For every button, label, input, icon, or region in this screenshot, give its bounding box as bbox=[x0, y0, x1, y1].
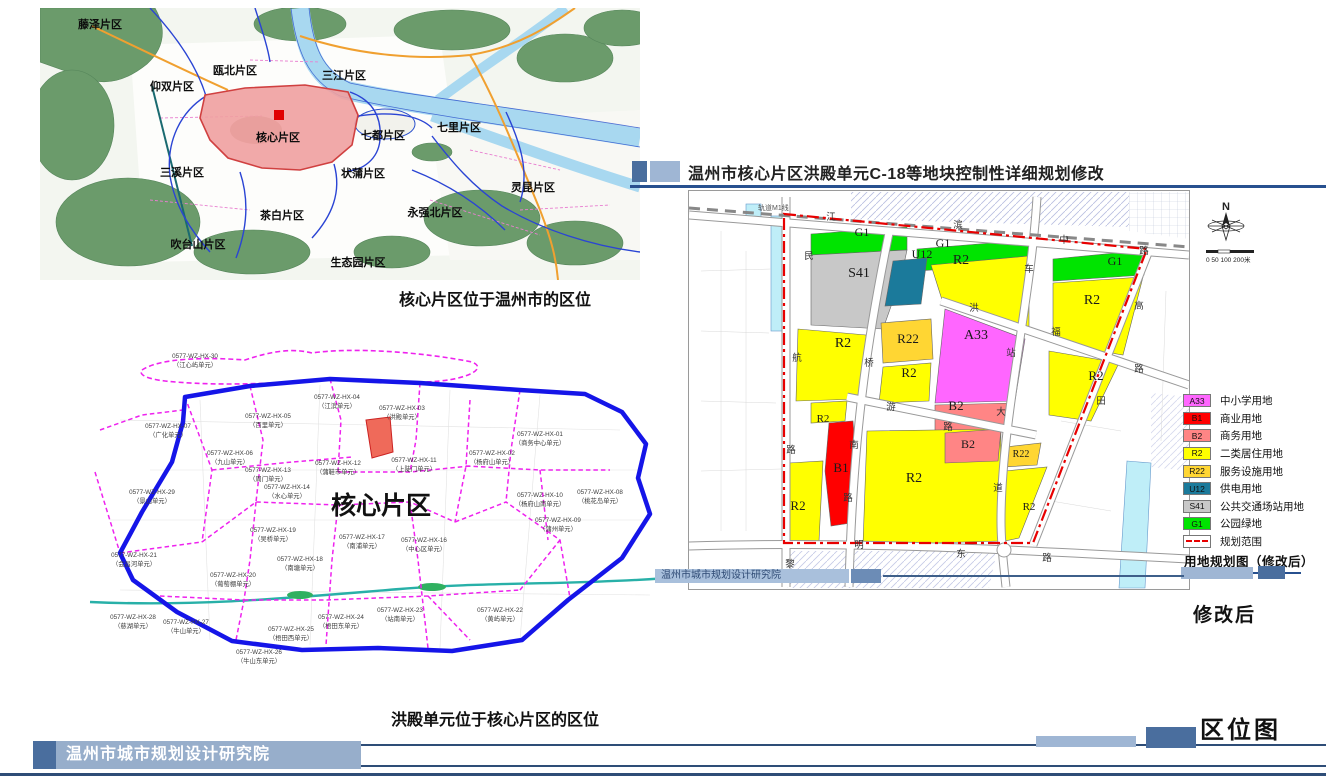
block-label: G1 bbox=[936, 236, 951, 250]
road-name-char: 路 bbox=[1042, 552, 1052, 564]
road-name-char: 明 bbox=[854, 540, 864, 551]
block-label: R2 bbox=[953, 253, 969, 268]
legend-row: B1商业用地 bbox=[1183, 410, 1325, 428]
block-label: R22 bbox=[897, 331, 919, 346]
unit-code: 0577-WZ-HX-09 bbox=[535, 517, 581, 524]
legend-bar-dark bbox=[1258, 566, 1285, 579]
unit-code: 0577-WZ-HX-13 bbox=[245, 467, 291, 474]
road-name-char: 中 bbox=[1059, 234, 1069, 246]
region-label: 灵昆片区 bbox=[511, 180, 555, 194]
block-label: B1 bbox=[833, 460, 848, 475]
road-name-char: 站 bbox=[1006, 347, 1016, 359]
road-name-char: 民 bbox=[804, 251, 814, 262]
unit-code: 0577-WZ-HX-14 bbox=[264, 484, 310, 491]
road-name-char: 路 bbox=[943, 421, 953, 433]
block-label: B2 bbox=[961, 437, 975, 451]
unit-code: 0577-WZ-HX-18 bbox=[277, 556, 323, 563]
block-label: U12 bbox=[912, 247, 933, 261]
legend-row: R2二类居住用地 bbox=[1183, 445, 1325, 463]
legend-row: U12供电用地 bbox=[1183, 480, 1325, 498]
unit-name: （中心区单元） bbox=[402, 544, 446, 553]
scale-bar: 0 50 100 200米 bbox=[1206, 250, 1254, 264]
road-name-char: 路 bbox=[786, 444, 796, 456]
region-overview-map: 藤泽片区瓯北片区三江片区仰双片区核心片区七都片区七里片区三溪片区状蒲片区灵昆片区… bbox=[40, 8, 640, 280]
block-label: A33 bbox=[964, 328, 988, 343]
unit-name: （牛山单元） bbox=[167, 626, 205, 635]
footer-org-bar: 温州市城市规划设计研究院 bbox=[56, 741, 361, 769]
zoning-footer-line bbox=[883, 575, 1184, 577]
block-r2 bbox=[796, 329, 866, 401]
block-label: R2 bbox=[790, 498, 805, 513]
grid-area-northeast bbox=[1129, 192, 1189, 239]
unit-code: 0577-WZ-HX-03 bbox=[379, 405, 425, 412]
block-label: G1 bbox=[855, 225, 870, 239]
legend-chip-r22: R22 bbox=[1183, 465, 1211, 478]
unit-code: 0577-WZ-HX-25 bbox=[268, 626, 314, 633]
unit-name: （杨府山单元） bbox=[470, 457, 514, 466]
plot-marker bbox=[274, 110, 284, 120]
footer-line-bottom bbox=[361, 765, 1326, 767]
road-name-char: 高 bbox=[1134, 300, 1144, 312]
footer-dark-square bbox=[33, 741, 56, 769]
unit-name: （站南单元） bbox=[381, 614, 419, 623]
unit-code: 0577-WZ-HX-30 bbox=[172, 353, 218, 360]
unit-name: （杨府山南单元） bbox=[515, 499, 565, 508]
region-label: 七里片区 bbox=[437, 120, 481, 134]
unit-code: 0577-WZ-HX-08 bbox=[577, 489, 623, 496]
zoning-map: 江滨中路民航路桥南路车站大道洪福路游路黎明东路高田 G1G1G1S41U12R2… bbox=[688, 190, 1190, 590]
legend-row: R22服务设施用地 bbox=[1183, 462, 1325, 480]
road-name-char: 南 bbox=[849, 439, 859, 451]
legend-chip-s41: S41 bbox=[1183, 500, 1211, 513]
unit-name: （会昌河单元） bbox=[112, 559, 156, 568]
unit-code: 0577-WZ-HX-07 bbox=[145, 423, 191, 430]
unit-map-caption: 洪殿单元位于核心片区的区位 bbox=[350, 706, 640, 730]
region-label: 永强北片区 bbox=[407, 205, 463, 219]
unit-code: 0577-WZ-HX-26 bbox=[236, 649, 282, 656]
region-label: 状蒲片区 bbox=[341, 166, 385, 180]
legend-chip-b1: B1 bbox=[1183, 412, 1211, 425]
road-name-char: 车 bbox=[1024, 263, 1034, 275]
legend-label: 商业用地 bbox=[1220, 411, 1262, 426]
road-name-char: 东 bbox=[956, 548, 966, 560]
block-label: G1 bbox=[1108, 254, 1123, 268]
footer-line-edge bbox=[0, 773, 1326, 776]
legend-row: B2商务用地 bbox=[1183, 427, 1325, 445]
legend: A33中小学用地B1商业用地B2商务用地R2二类居住用地R22服务设施用地U12… bbox=[1183, 392, 1325, 550]
unit-code: 0577-WZ-HX-29 bbox=[129, 489, 175, 496]
unit-code: 0577-WZ-HX-10 bbox=[517, 492, 563, 499]
unit-name: （慈湖单元） bbox=[114, 621, 152, 630]
zoning-footer-bar: 温州市城市规划设计研究院 bbox=[655, 569, 849, 583]
footer-right-dark-square bbox=[1146, 727, 1196, 748]
after-modification-label: 修改后 bbox=[1193, 600, 1256, 627]
unit-name: （洪殿单元） bbox=[383, 412, 421, 421]
unit-name: （梧田东单元） bbox=[319, 621, 363, 630]
road-name-char: 道 bbox=[993, 482, 1003, 494]
unit-code: 0577-WZ-HX-22 bbox=[477, 607, 523, 614]
block-label: R2 bbox=[906, 471, 922, 486]
region-label: 七都片区 bbox=[361, 128, 405, 142]
region-label: 仰双片区 bbox=[150, 79, 194, 93]
unit-code: 0577-WZ-HX-05 bbox=[245, 413, 291, 420]
road-name-char: 田 bbox=[1096, 396, 1106, 407]
plan-title: 温州市核心片区洪殿单元C-18等地块控制性详细规划修改 bbox=[688, 160, 1326, 184]
legend-label: 商务用地 bbox=[1220, 428, 1262, 443]
block-label: R2 bbox=[817, 413, 830, 425]
block-label: B2 bbox=[948, 398, 963, 413]
unit-name: （南浦单元） bbox=[343, 541, 381, 550]
scale-text: 0 50 100 200米 bbox=[1206, 255, 1251, 264]
green-patch bbox=[418, 583, 446, 591]
block-label: R2 bbox=[835, 336, 851, 351]
road-name-char: 桥 bbox=[864, 357, 874, 369]
block-label: R2 bbox=[901, 365, 916, 380]
legend-chip-g1: G1 bbox=[1183, 517, 1211, 530]
unit-name: （蒲州单元） bbox=[539, 524, 577, 533]
unit-name: （江滨单元） bbox=[318, 401, 356, 410]
unit-name: （南塘单元） bbox=[281, 563, 319, 572]
unit-name: （周门单元） bbox=[249, 474, 287, 483]
unit-name: （广化单元） bbox=[149, 430, 187, 439]
unit-code: 0577-WZ-HX-20 bbox=[210, 572, 256, 579]
legend-row-boundary: 规划范围 bbox=[1183, 533, 1325, 551]
legend-label: 规划范围 bbox=[1220, 534, 1262, 549]
unit-code: 0577-WZ-HX-16 bbox=[401, 537, 447, 544]
green-patch bbox=[287, 591, 313, 599]
block-label: R2 bbox=[1088, 368, 1103, 383]
footer-right-light-bar bbox=[1036, 736, 1136, 747]
road-name-char: 大 bbox=[996, 406, 1006, 418]
legend-row: G1公园绿地 bbox=[1183, 515, 1325, 533]
unit-name: （桃花岛单元） bbox=[578, 496, 622, 505]
legend-chip-boundary bbox=[1183, 535, 1211, 548]
unit-code: 0577-WZ-HX-28 bbox=[110, 614, 156, 621]
block-label: R22 bbox=[1013, 449, 1030, 460]
header-underline bbox=[630, 185, 1326, 188]
unit-name: （吴桥单元） bbox=[254, 534, 292, 543]
road-name-char: 路 bbox=[1134, 363, 1144, 375]
unit-code: 0577-WZ-HX-06 bbox=[207, 450, 253, 457]
core-district-big-label: 核心片区 bbox=[331, 491, 431, 520]
road-name-char: 江 bbox=[826, 212, 836, 223]
block-label: S41 bbox=[848, 266, 870, 281]
legend-row: S41公共交通场站用地 bbox=[1183, 498, 1325, 516]
unit-code: 0577-WZ-HX-12 bbox=[315, 460, 361, 467]
legend-chip-r2: R2 bbox=[1183, 447, 1211, 460]
unit-name: （上陡门单元） bbox=[392, 464, 436, 473]
unit-name: （景山单元） bbox=[133, 496, 171, 505]
region-label: 生态园片区 bbox=[331, 255, 386, 269]
road-name-char: 福 bbox=[1051, 326, 1061, 338]
road-name-char: 路 bbox=[843, 492, 853, 504]
region-label: 三溪片区 bbox=[160, 165, 204, 179]
region-label: 藤泽片区 bbox=[78, 17, 122, 31]
unit-name: （商务中心单元） bbox=[515, 438, 565, 447]
region-label: 核心片区 bbox=[256, 130, 300, 144]
unit-code: 0577-WZ-HX-11 bbox=[391, 457, 437, 464]
unit-name: （九山单元） bbox=[211, 457, 249, 466]
unit-name: （黄屿单元） bbox=[481, 614, 519, 623]
road-name-char: 游 bbox=[886, 401, 896, 413]
unit-code: 0577-WZ-HX-01 bbox=[517, 431, 563, 438]
unit-name: （百里单元） bbox=[249, 420, 287, 429]
unit-code: 0577-WZ-HX-04 bbox=[314, 394, 360, 401]
map-type-label: 区位图 bbox=[1200, 710, 1281, 745]
header-light-rect bbox=[650, 161, 680, 182]
legend-label: 公共交通场站用地 bbox=[1220, 499, 1304, 514]
unit-name: （梧田西单元） bbox=[269, 633, 313, 642]
north-label: N bbox=[1222, 201, 1230, 213]
unit-code: 0577-WZ-HX-23 bbox=[377, 607, 423, 614]
metro-line-label: 轨道M1线 bbox=[758, 203, 789, 212]
region-label: 茶白片区 bbox=[259, 208, 304, 222]
legend-label: 二类居住用地 bbox=[1220, 446, 1283, 461]
legend-chip-a33: A33 bbox=[1183, 394, 1211, 407]
unit-name: （牛山东单元） bbox=[237, 656, 281, 665]
road-name-char: 航 bbox=[792, 352, 802, 364]
unit-code: 0577-WZ-HX-17 bbox=[339, 534, 385, 541]
unit-name: （蒲鞋市单元） bbox=[316, 467, 360, 476]
compass-and-scale: N 0 50 100 200米 bbox=[1198, 198, 1288, 268]
legend-label: 服务设施用地 bbox=[1220, 464, 1283, 479]
road-name-char: 洪 bbox=[969, 302, 979, 314]
region-label: 三江片区 bbox=[322, 68, 366, 82]
unit-code: 0577-WZ-HX-24 bbox=[318, 614, 364, 621]
unit-name: （葡萄棚单元） bbox=[211, 579, 255, 588]
unit-code: 0577-WZ-HX-19 bbox=[250, 527, 296, 534]
zoning-footer-square bbox=[851, 569, 881, 583]
region-label: 瓯北片区 bbox=[213, 63, 257, 77]
block-label: R2 bbox=[1084, 293, 1100, 308]
unit-name: （江心屿单元） bbox=[173, 360, 217, 369]
compass-rose-icon bbox=[1208, 212, 1244, 240]
legend-label: 公园绿地 bbox=[1220, 516, 1262, 531]
region-label: 吹台山片区 bbox=[171, 237, 226, 251]
legend-label: 中小学用地 bbox=[1220, 393, 1273, 408]
unit-code: 0577-WZ-HX-27 bbox=[163, 619, 209, 626]
unit-code: 0577-WZ-HX-02 bbox=[469, 450, 515, 457]
unit-name: （水心单元） bbox=[268, 491, 306, 500]
legend-chip-u12: U12 bbox=[1183, 482, 1211, 495]
legend-bar-light bbox=[1181, 567, 1253, 579]
block-label: R2 bbox=[1023, 501, 1036, 513]
road-name-char: 路 bbox=[1139, 245, 1149, 257]
legend-label: 供电用地 bbox=[1220, 481, 1262, 496]
region-map-caption: 核心片区位于温州市的区位 bbox=[320, 286, 670, 310]
legend-row: A33中小学用地 bbox=[1183, 392, 1325, 410]
unit-division-map: 0577-WZ-HX-30（江心屿单元）0577-WZ-HX-07（广化单元）0… bbox=[80, 342, 670, 700]
header-dark-square bbox=[632, 161, 647, 182]
legend-chip-b2: B2 bbox=[1183, 429, 1211, 442]
road-name-char: 滨 bbox=[953, 219, 963, 231]
unit-code: 0577-WZ-HX-21 bbox=[111, 552, 157, 559]
